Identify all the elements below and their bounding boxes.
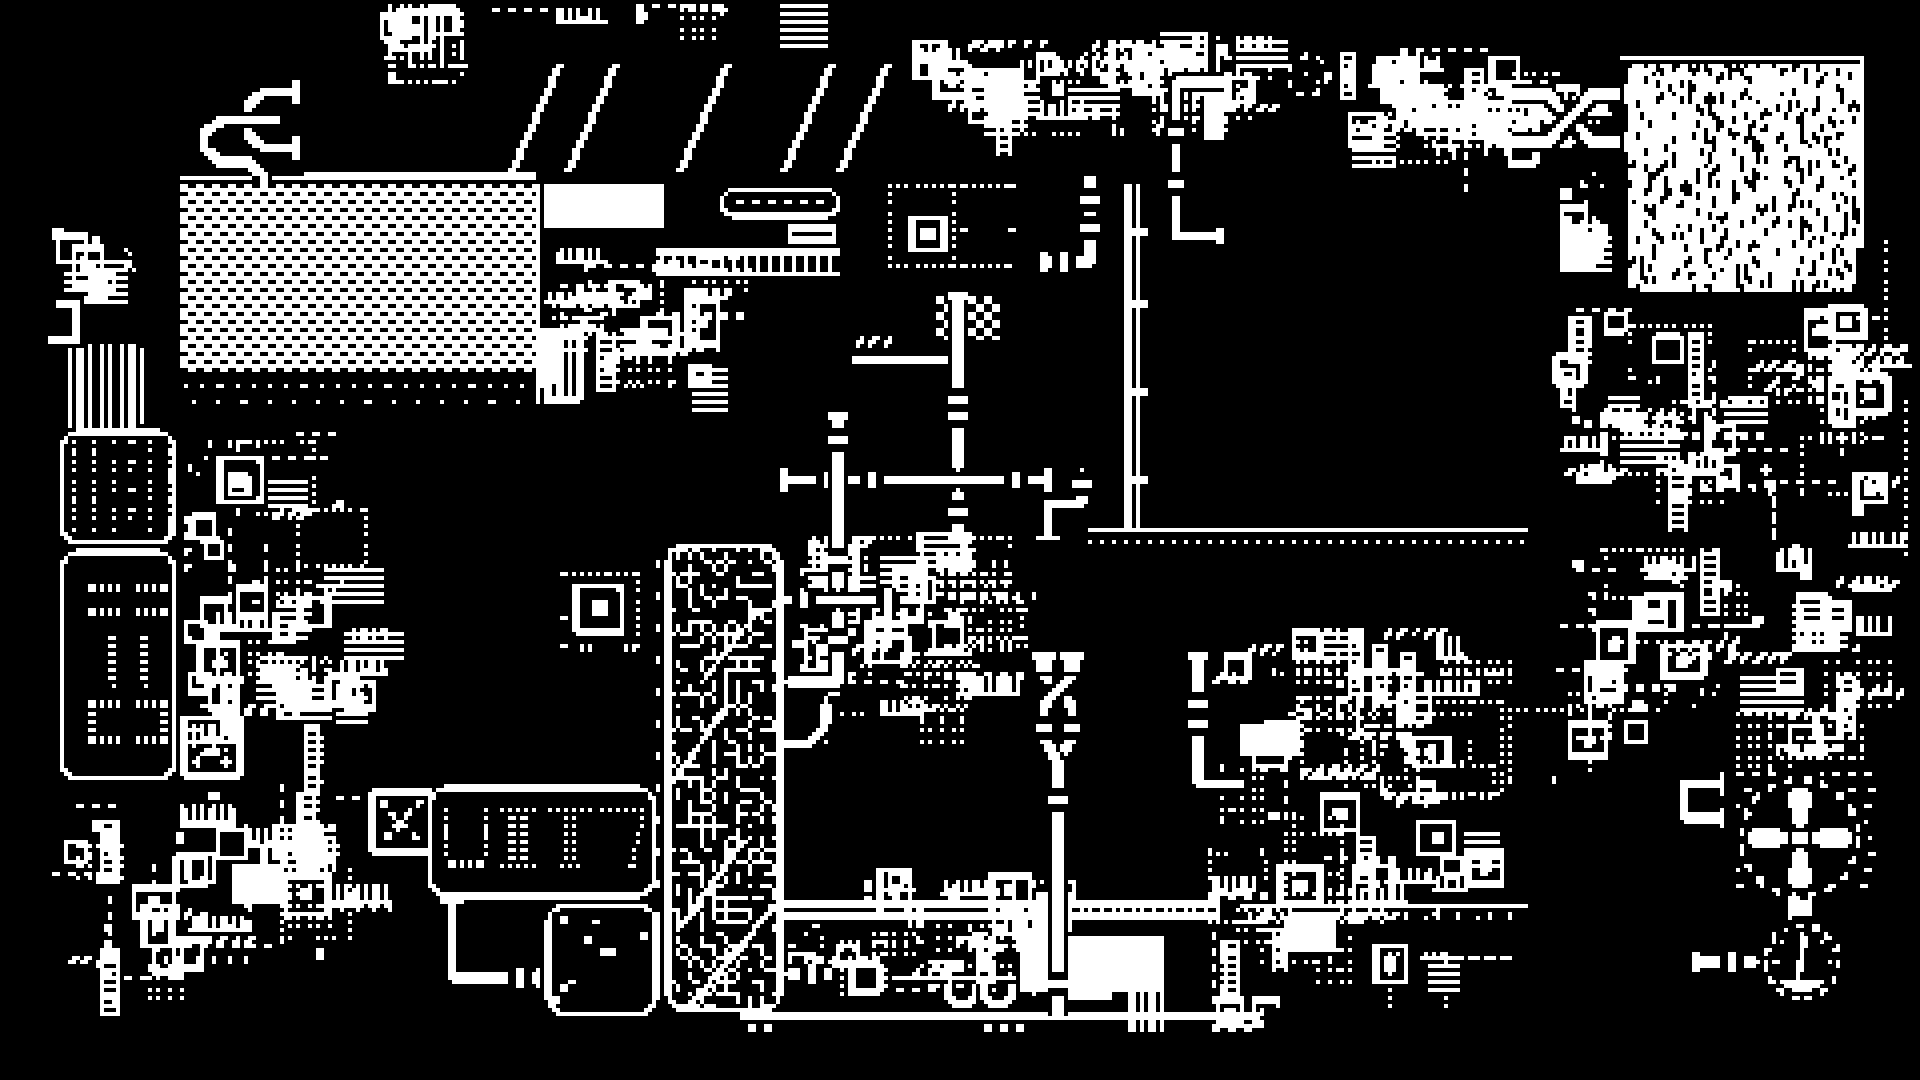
pixel-circuit-collage — [0, 0, 1920, 1080]
circuit-board-art-canvas — [0, 0, 1920, 1080]
